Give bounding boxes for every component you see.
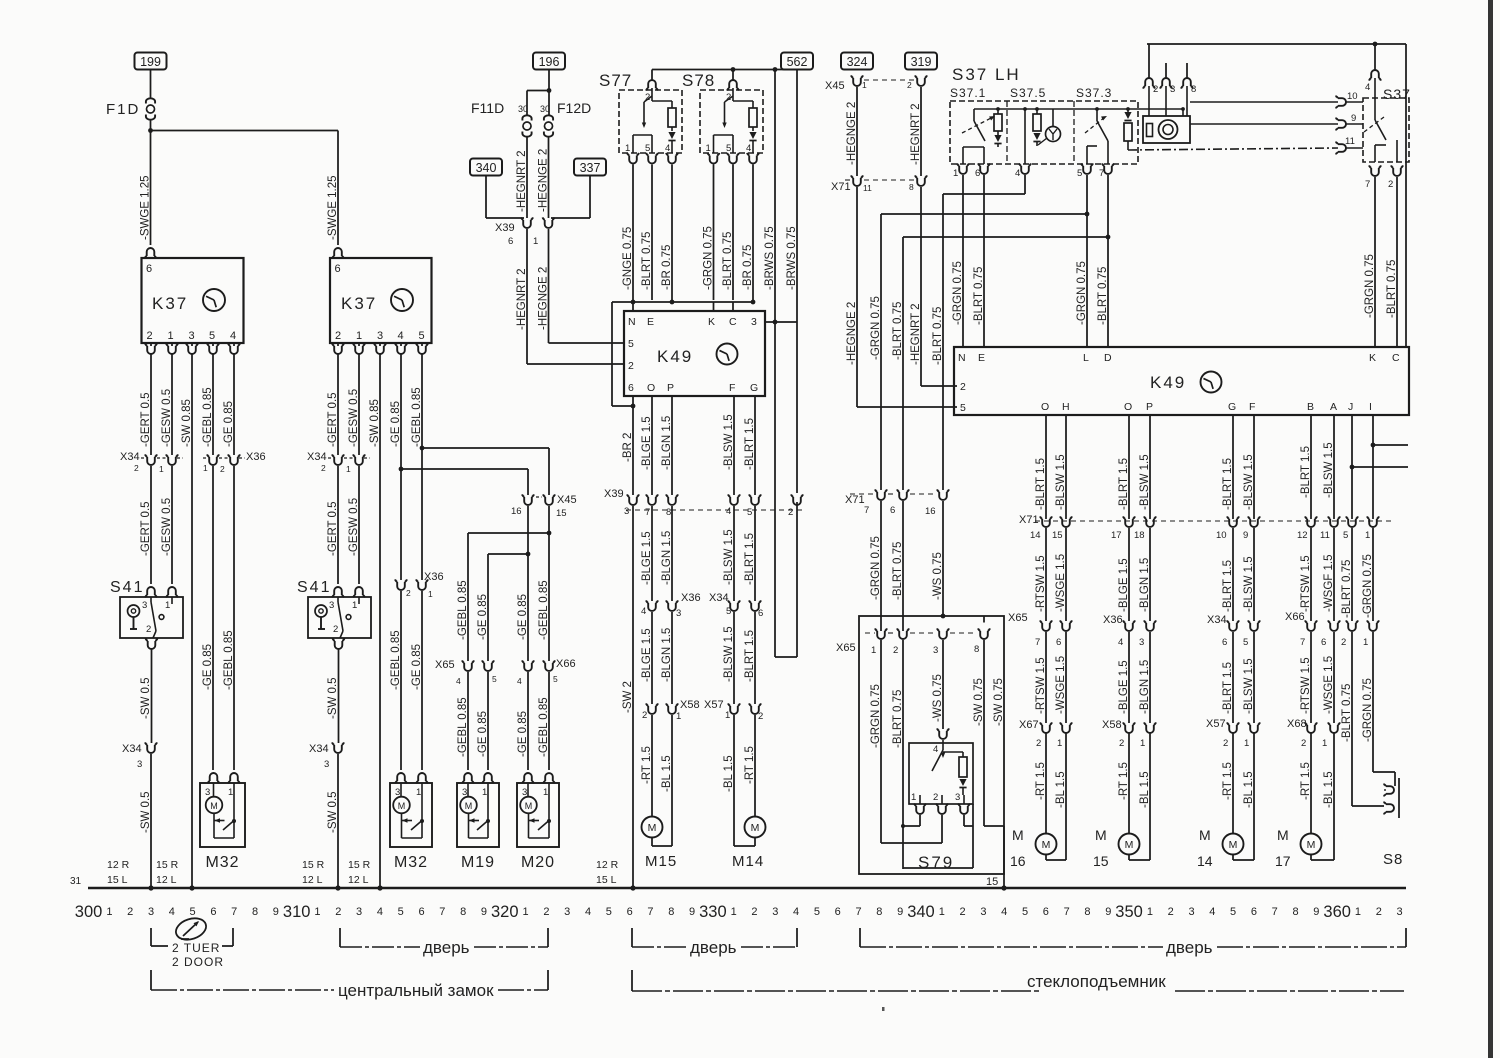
svg-text:X58: X58 (1102, 719, 1122, 731)
svg-text:4: 4 (397, 330, 403, 342)
svg-text:-SW 0.5: -SW 0.5 (140, 791, 152, 833)
svg-text:7: 7 (1272, 906, 1278, 918)
svg-text:H: H (1062, 401, 1070, 413)
svg-text:3: 3 (356, 906, 362, 918)
svg-text:1: 1 (346, 464, 351, 474)
svg-text:-HEGNRT 2: -HEGNRT 2 (516, 268, 528, 330)
svg-text:1: 1 (862, 80, 867, 90)
svg-text:2: 2 (960, 906, 966, 918)
svg-text:-BLSW 1.5: -BLSW 1.5 (1243, 454, 1255, 510)
svg-text:2: 2 (1223, 738, 1228, 749)
svg-text:X45: X45 (825, 80, 845, 92)
svg-text:12 L: 12 L (348, 874, 369, 886)
svg-text:A: A (1330, 401, 1337, 413)
svg-text:-BLRT 0.75: -BLRT 0.75 (973, 267, 985, 325)
svg-text:1: 1 (731, 906, 737, 918)
svg-text:-GEBL 0.85: -GEBL 0.85 (223, 630, 235, 690)
svg-text:6: 6 (146, 263, 152, 275)
svg-text:F: F (1249, 401, 1255, 413)
svg-text:300: 300 (75, 903, 103, 921)
svg-text:-GE 0.85: -GE 0.85 (223, 401, 235, 447)
svg-text:J: J (1348, 401, 1353, 413)
svg-text:2: 2 (1341, 637, 1346, 648)
svg-text:S37.5: S37.5 (1010, 86, 1046, 100)
svg-text:4: 4 (517, 676, 522, 686)
svg-text:12 L: 12 L (302, 874, 323, 886)
svg-text:-HEGNGE 2: -HEGNGE 2 (538, 267, 550, 330)
svg-text:X36: X36 (681, 592, 701, 604)
svg-text:3: 3 (772, 906, 778, 918)
svg-text:X58: X58 (680, 699, 700, 711)
svg-text:1: 1 (352, 600, 357, 611)
svg-text:M: M (1012, 827, 1024, 843)
svg-text:7: 7 (1064, 906, 1070, 918)
svg-text:X66: X66 (556, 658, 576, 670)
svg-text:5: 5 (645, 143, 650, 154)
svg-text:-GEBL 0.85: -GEBL 0.85 (538, 580, 550, 640)
svg-text:-WS 0.75: -WS 0.75 (932, 674, 944, 722)
svg-text:3: 3 (142, 600, 147, 611)
svg-text:-BL 1.5: -BL 1.5 (661, 755, 673, 792)
svg-text:1: 1 (356, 330, 362, 342)
svg-text:16: 16 (1010, 853, 1026, 869)
svg-text:-BLSW 1.5: -BLSW 1.5 (723, 626, 735, 682)
svg-text:15 L: 15 L (107, 874, 128, 886)
svg-text:-SW 0.5: -SW 0.5 (327, 791, 339, 833)
svg-text:M: M (465, 801, 473, 811)
svg-text:3: 3 (564, 906, 570, 918)
svg-text:2: 2 (751, 906, 757, 918)
svg-text:6: 6 (210, 906, 216, 918)
svg-text:6: 6 (1056, 637, 1061, 648)
svg-text:X57: X57 (704, 699, 724, 711)
svg-text:-WSGE 1.5: -WSGE 1.5 (1323, 656, 1335, 714)
svg-text:-RT 1.5: -RT 1.5 (641, 746, 653, 784)
svg-text:-BRWS 0.75: -BRWS 0.75 (764, 226, 776, 290)
svg-text:-GE 0.85: -GE 0.85 (477, 711, 489, 757)
svg-text:-SW 0.75: -SW 0.75 (973, 678, 985, 726)
svg-text:S77: S77 (599, 71, 632, 90)
svg-text:-BLGN 1.5: -BLGN 1.5 (661, 531, 673, 585)
svg-text:5: 5 (960, 402, 966, 414)
svg-text:1: 1 (416, 787, 421, 798)
svg-text:15: 15 (1052, 530, 1063, 541)
svg-text:X66: X66 (1285, 611, 1305, 623)
svg-text:1: 1 (676, 711, 681, 722)
svg-text:-GE 0.85: -GE 0.85 (411, 644, 423, 690)
svg-text:9: 9 (1243, 530, 1248, 541)
svg-text:4: 4 (933, 744, 938, 755)
svg-text:O: O (647, 382, 655, 394)
svg-text:9: 9 (689, 906, 695, 918)
svg-text:-GRGN 0.75: -GRGN 0.75 (1362, 678, 1374, 742)
svg-text:6: 6 (890, 505, 895, 516)
svg-text:6: 6 (1321, 637, 1326, 648)
svg-text:-BR 2: -BR 2 (622, 433, 634, 462)
svg-text:-RTSW 1.5: -RTSW 1.5 (1300, 657, 1312, 714)
svg-text:-GRGN 0.75: -GRGN 0.75 (870, 296, 882, 360)
svg-text:-SWGE 1.25: -SWGE 1.25 (140, 175, 152, 240)
svg-text:M: M (1307, 839, 1316, 851)
svg-text:-SW 0.5: -SW 0.5 (327, 677, 339, 719)
svg-text:1: 1 (428, 589, 433, 599)
svg-text:-BLRT 1.5: -BLRT 1.5 (744, 533, 756, 585)
svg-text:12 L: 12 L (156, 874, 177, 886)
svg-text:-GERT 0.5: -GERT 0.5 (140, 501, 152, 556)
svg-text:M: M (1095, 827, 1107, 843)
svg-text:-GE 0.85: -GE 0.85 (477, 594, 489, 640)
svg-text:5: 5 (1077, 168, 1082, 179)
svg-text:1: 1 (1147, 906, 1153, 918)
svg-text:K37: K37 (152, 294, 188, 313)
svg-text:8: 8 (666, 507, 671, 518)
svg-text:дверь: дверь (423, 938, 470, 957)
svg-text:8: 8 (1191, 84, 1196, 95)
svg-text:-GRGN 0.75: -GRGN 0.75 (870, 536, 882, 600)
svg-text:-SWGE 1.25: -SWGE 1.25 (327, 175, 339, 240)
svg-text:4: 4 (641, 606, 646, 617)
svg-text:P: P (1146, 401, 1153, 413)
svg-text:1: 1 (523, 906, 529, 918)
svg-text:1: 1 (1355, 906, 1361, 918)
svg-text:5: 5 (726, 143, 731, 154)
svg-text:-GE 0.85: -GE 0.85 (517, 594, 529, 640)
svg-text:X34: X34 (1207, 614, 1227, 626)
svg-text:D: D (1104, 352, 1112, 364)
svg-text:10: 10 (1216, 530, 1227, 541)
svg-text:-RTSW 1.5: -RTSW 1.5 (1035, 555, 1047, 612)
svg-text:3: 3 (205, 787, 210, 798)
svg-text:2: 2 (543, 906, 549, 918)
svg-text:-GERT 0.5: -GERT 0.5 (327, 392, 339, 447)
svg-text:3: 3 (1188, 906, 1194, 918)
svg-text:-HEGNRT 2: -HEGNRT 2 (910, 303, 922, 365)
svg-text:-BLSW 1.5: -BLSW 1.5 (1243, 556, 1255, 612)
svg-text:-BLRT 0.75: -BLRT 0.75 (1097, 267, 1109, 325)
svg-text:-BLSW 1.5: -BLSW 1.5 (723, 414, 735, 470)
svg-text:-GEBL 0.85: -GEBL 0.85 (457, 580, 469, 640)
svg-text:-GEBL 0.85: -GEBL 0.85 (390, 630, 402, 690)
svg-text:-RTSW 1.5: -RTSW 1.5 (1300, 555, 1312, 612)
svg-text:9: 9 (1313, 906, 1319, 918)
svg-text:M20: M20 (521, 854, 555, 871)
svg-text:-BR 0.75: -BR 0.75 (661, 245, 673, 290)
svg-text:7: 7 (231, 906, 237, 918)
svg-text:S41: S41 (297, 579, 331, 596)
svg-text:X71: X71 (845, 494, 865, 506)
svg-text:X57: X57 (1206, 718, 1226, 730)
svg-text:3: 3 (1139, 637, 1144, 648)
svg-text:9: 9 (1105, 906, 1111, 918)
svg-text:-GE 0.85: -GE 0.85 (517, 711, 529, 757)
svg-text:N: N (958, 352, 966, 364)
svg-text:5: 5 (209, 330, 215, 342)
svg-text:-SW 0.75: -SW 0.75 (993, 678, 1005, 726)
svg-text:5: 5 (492, 674, 497, 684)
svg-text:1: 1 (1057, 738, 1062, 749)
svg-text:6: 6 (1251, 906, 1257, 918)
svg-text:-GRGN 0.75: -GRGN 0.75 (952, 261, 964, 325)
svg-text:-BLRT 1.5: -BLRT 1.5 (744, 630, 756, 682)
svg-text:11: 11 (1320, 530, 1330, 541)
svg-text:3: 3 (188, 330, 194, 342)
svg-text:-WS 0.75: -WS 0.75 (932, 552, 944, 600)
svg-text:2 DOOR: 2 DOOR (172, 955, 224, 969)
svg-text:S8: S8 (1383, 851, 1403, 868)
svg-text:-BLSW 1.5: -BLSW 1.5 (1323, 442, 1335, 498)
svg-text:-GEBL 0.85: -GEBL 0.85 (538, 697, 550, 757)
svg-text:7: 7 (855, 906, 861, 918)
svg-text:1: 1 (1363, 637, 1368, 648)
svg-text:5: 5 (1022, 906, 1028, 918)
svg-text:4: 4 (1365, 82, 1370, 93)
svg-text:15 R: 15 R (156, 859, 179, 871)
svg-text:2: 2 (642, 710, 647, 721)
svg-text:-BRWS 0.75: -BRWS 0.75 (786, 226, 798, 290)
svg-text:F12D: F12D (557, 100, 591, 116)
svg-text:1: 1 (911, 792, 916, 803)
svg-text:1: 1 (871, 645, 876, 656)
svg-text:3: 3 (377, 330, 383, 342)
svg-text:7: 7 (1099, 168, 1104, 179)
svg-text:M32: M32 (205, 854, 239, 871)
svg-text:2: 2 (758, 711, 763, 722)
svg-text:-GERT 0.5: -GERT 0.5 (327, 501, 339, 556)
svg-text:X36: X36 (1103, 614, 1123, 626)
svg-text:-HEGNGE 2: -HEGNGE 2 (846, 102, 858, 165)
svg-text:14: 14 (1197, 853, 1213, 869)
svg-text:-BLSW 1.5: -BLSW 1.5 (723, 529, 735, 585)
svg-text:1: 1 (106, 906, 112, 918)
svg-text:X71: X71 (1019, 514, 1039, 526)
svg-text:15: 15 (1093, 853, 1109, 869)
svg-text:-GRGN 0.75: -GRGN 0.75 (1364, 254, 1376, 318)
svg-text:-SW 0.85: -SW 0.85 (369, 399, 381, 447)
svg-text:-BLSW 1.5: -BLSW 1.5 (1055, 454, 1067, 510)
svg-text:7: 7 (645, 507, 650, 518)
svg-text:4: 4 (793, 906, 799, 918)
svg-text:S41: S41 (110, 579, 144, 596)
svg-text:196: 196 (539, 55, 560, 69)
svg-text:G: G (1228, 401, 1236, 413)
svg-text:7: 7 (647, 906, 653, 918)
svg-text:12: 12 (1297, 530, 1308, 541)
svg-text:15: 15 (556, 508, 567, 519)
svg-text:M: M (1229, 839, 1238, 851)
svg-text:15: 15 (986, 876, 998, 888)
svg-text:15 L: 15 L (596, 874, 617, 886)
svg-text:17: 17 (1275, 853, 1291, 869)
svg-text:16: 16 (925, 506, 936, 517)
svg-text:5: 5 (398, 906, 404, 918)
svg-text:-HEGNGE 2: -HEGNGE 2 (846, 302, 858, 365)
svg-text:6: 6 (758, 608, 763, 619)
svg-text:O: O (1124, 401, 1132, 413)
svg-text:M: M (751, 822, 760, 834)
svg-text:B: B (1307, 401, 1314, 413)
svg-text:330: 330 (699, 903, 727, 921)
svg-text:-GESW 0.5: -GESW 0.5 (348, 498, 360, 556)
svg-text:1: 1 (625, 143, 630, 154)
svg-text:F11D: F11D (471, 100, 504, 116)
svg-text:4: 4 (1118, 637, 1123, 648)
svg-text:K: K (708, 316, 715, 328)
svg-text:2: 2 (335, 330, 341, 342)
svg-text:1: 1 (1140, 738, 1145, 749)
svg-text:1: 1 (165, 600, 170, 611)
svg-text:2: 2 (628, 360, 634, 372)
svg-text:-WSGE 1.5: -WSGE 1.5 (1055, 554, 1067, 612)
svg-text:L: L (1083, 352, 1089, 364)
svg-text:-HEGNGE 2: -HEGNGE 2 (538, 149, 550, 212)
svg-text:319: 319 (911, 55, 932, 69)
svg-text:M: M (648, 822, 657, 834)
svg-text:X71: X71 (831, 181, 851, 193)
svg-text:K49: K49 (1150, 373, 1186, 392)
svg-text:7: 7 (1365, 179, 1370, 190)
svg-text:8: 8 (1292, 906, 1298, 918)
svg-text:2: 2 (1388, 179, 1393, 190)
svg-text:5: 5 (1230, 906, 1236, 918)
svg-text:2: 2 (134, 463, 139, 473)
svg-text:9: 9 (273, 906, 279, 918)
svg-text:X65: X65 (836, 642, 856, 654)
svg-text:-RTSW 1.5: -RTSW 1.5 (1035, 657, 1047, 714)
svg-text:M: M (1277, 827, 1289, 843)
svg-text:8: 8 (1084, 906, 1090, 918)
svg-text:4: 4 (1015, 168, 1020, 179)
svg-text:14: 14 (1030, 530, 1041, 541)
svg-text:-BLRT 0.75: -BLRT 0.75 (722, 232, 734, 290)
svg-text:6: 6 (628, 382, 634, 394)
svg-text:7: 7 (864, 505, 869, 516)
svg-text:1: 1 (533, 236, 538, 247)
svg-text:X39: X39 (495, 222, 515, 234)
svg-text:-GESW 0.5: -GESW 0.5 (348, 389, 360, 447)
svg-text:S37 LH: S37 LH (952, 65, 1021, 84)
svg-text:-GEBL 0.85: -GEBL 0.85 (202, 387, 214, 447)
svg-text:2: 2 (127, 906, 133, 918)
svg-text:3: 3 (955, 792, 960, 803)
svg-text:2: 2 (146, 624, 151, 635)
svg-text:1: 1 (1365, 530, 1370, 541)
svg-text:1: 1 (159, 464, 164, 474)
svg-text:X34: X34 (309, 743, 329, 755)
svg-text:S79: S79 (918, 853, 954, 872)
svg-text:X34: X34 (709, 592, 729, 604)
svg-text:N: N (628, 316, 636, 328)
svg-text:-GEBL 0.85: -GEBL 0.85 (457, 697, 469, 757)
svg-text:310: 310 (283, 903, 311, 921)
svg-text:16: 16 (511, 506, 522, 517)
svg-text:2: 2 (893, 645, 898, 656)
svg-text:11: 11 (1345, 136, 1355, 147)
svg-text:2: 2 (960, 381, 966, 393)
svg-text:стеклоподъемник: стеклоподъемник (1027, 972, 1166, 991)
svg-text:-BLGE 1.5: -BLGE 1.5 (641, 531, 653, 585)
svg-text:S37.3: S37.3 (1076, 86, 1112, 100)
svg-text:-BLGE 1.5: -BLGE 1.5 (641, 628, 653, 682)
svg-text:-WSGF 1.5: -WSGF 1.5 (1323, 554, 1335, 612)
svg-text:30: 30 (518, 104, 528, 114)
svg-text:M: M (398, 801, 406, 811)
svg-text:X34: X34 (120, 451, 140, 463)
svg-text:-BLRT 0.75: -BLRT 0.75 (1341, 684, 1353, 742)
svg-text:1: 1 (725, 710, 730, 721)
svg-text:-SW 0.85: -SW 0.85 (181, 399, 193, 447)
svg-text:1: 1 (167, 330, 173, 342)
svg-text:3: 3 (676, 608, 681, 619)
svg-text:4: 4 (1209, 906, 1215, 918)
svg-text:K37: K37 (341, 294, 377, 313)
svg-text:C: C (729, 316, 737, 328)
svg-text:9: 9 (897, 906, 903, 918)
svg-text:3: 3 (137, 759, 142, 770)
svg-text:6: 6 (335, 263, 341, 275)
svg-text:2: 2 (146, 330, 152, 342)
svg-text:P: P (667, 382, 674, 394)
svg-text:-SW 0.5: -SW 0.5 (140, 677, 152, 719)
svg-text:X68: X68 (1287, 718, 1307, 730)
svg-text:M19: M19 (461, 854, 495, 871)
svg-text:360: 360 (1323, 903, 1351, 921)
svg-text:1: 1 (953, 168, 958, 179)
svg-text:10: 10 (1347, 91, 1358, 102)
svg-text:562: 562 (787, 55, 808, 69)
svg-text:X45: X45 (557, 494, 577, 506)
svg-text:9: 9 (481, 906, 487, 918)
svg-text:M15: M15 (645, 853, 677, 870)
svg-text:5: 5 (190, 906, 196, 918)
svg-text:340: 340 (476, 161, 497, 175)
svg-text:4: 4 (456, 676, 461, 686)
svg-text:199: 199 (140, 55, 161, 69)
svg-text:-RT 1.5: -RT 1.5 (744, 746, 756, 784)
svg-text:-GRGN 0.75: -GRGN 0.75 (1076, 261, 1088, 325)
svg-text:6: 6 (1222, 637, 1227, 648)
svg-text:4: 4 (726, 506, 731, 517)
svg-text:E: E (647, 316, 654, 328)
svg-text:2: 2 (406, 588, 411, 598)
svg-text:4: 4 (585, 906, 591, 918)
svg-text:2: 2 (335, 906, 341, 918)
svg-text:M: M (1042, 839, 1051, 851)
svg-text:2: 2 (321, 463, 326, 473)
svg-text:7: 7 (439, 906, 445, 918)
svg-text:6: 6 (835, 906, 841, 918)
svg-text:1: 1 (1322, 738, 1327, 749)
svg-text:X36: X36 (246, 451, 266, 463)
svg-text:8: 8 (909, 182, 914, 192)
svg-text:2: 2 (1036, 738, 1041, 749)
svg-text:5: 5 (418, 330, 424, 342)
svg-text:8: 8 (460, 906, 466, 918)
svg-text:M: M (210, 801, 218, 811)
svg-text:8: 8 (252, 906, 258, 918)
svg-text:-GERT 0.5: -GERT 0.5 (140, 392, 152, 447)
svg-text:3: 3 (324, 759, 329, 770)
svg-text:8: 8 (668, 906, 674, 918)
svg-text:-HEGNRT 2: -HEGNRT 2 (516, 150, 528, 212)
svg-text:5: 5 (628, 338, 634, 350)
svg-text:350: 350 (1115, 903, 1143, 921)
svg-text:-BLRT 0.75: -BLRT 0.75 (932, 307, 944, 365)
svg-text:18: 18 (1134, 530, 1145, 541)
svg-text:2: 2 (1119, 738, 1124, 749)
svg-text:-BLRT 0.75: -BLRT 0.75 (641, 232, 653, 290)
svg-text:340: 340 (907, 903, 935, 921)
svg-text:G: G (750, 382, 758, 394)
